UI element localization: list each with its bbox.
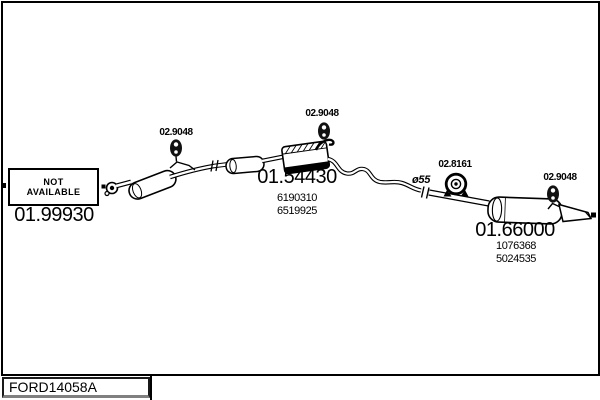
exhaust-system-diagram: NOT AVAILABLE 01.99930 01.54430 01.66000… (0, 0, 600, 400)
pipe-diameter-label: ø55 (407, 174, 435, 186)
not-available-box: NOT AVAILABLE (8, 168, 99, 206)
hanger-stem-front (176, 157, 177, 162)
catalyst-body (127, 168, 179, 201)
accessory-code-front-hanger[interactable]: 02.9048 (156, 127, 196, 138)
clamp-icon (444, 174, 469, 196)
flange-bolt-2 (105, 192, 109, 196)
right-edge-marker (591, 213, 596, 218)
rubber-hanger-icon-front (170, 139, 182, 156)
rubber-hanger-icon-centre (318, 122, 330, 139)
oe-number: 6519925 (266, 205, 328, 217)
joint-marker (102, 185, 106, 189)
not-available-line2: AVAILABLE (27, 187, 81, 198)
part-number-centre-silencer[interactable]: 01.54430 (249, 166, 345, 189)
accessory-code-clamp[interactable]: 02.8161 (435, 159, 475, 170)
clamp-joint-ticks (422, 187, 430, 199)
oe-number: 6190310 (266, 192, 328, 204)
oe-number: 5024535 (485, 253, 547, 265)
accessory-code-rear-hanger[interactable]: 02.9048 (540, 172, 580, 183)
left-edge-marker (2, 183, 6, 188)
part-number-rear-silencer[interactable]: 01.66000 (467, 219, 563, 242)
oe-number: 1076368 (485, 240, 547, 252)
diagram-code-box[interactable]: FORD14058A (2, 377, 150, 398)
flange-bolt (110, 186, 114, 190)
footer-divider (150, 374, 152, 400)
accessory-code-centre-hanger[interactable]: 02.9048 (302, 108, 342, 119)
not-available-line1: NOT (43, 177, 63, 188)
diagram-code: FORD14058A (9, 379, 97, 395)
rubber-hanger-icon-rear (547, 185, 559, 202)
part-number-front-pipe[interactable]: 01.99930 (6, 204, 102, 227)
